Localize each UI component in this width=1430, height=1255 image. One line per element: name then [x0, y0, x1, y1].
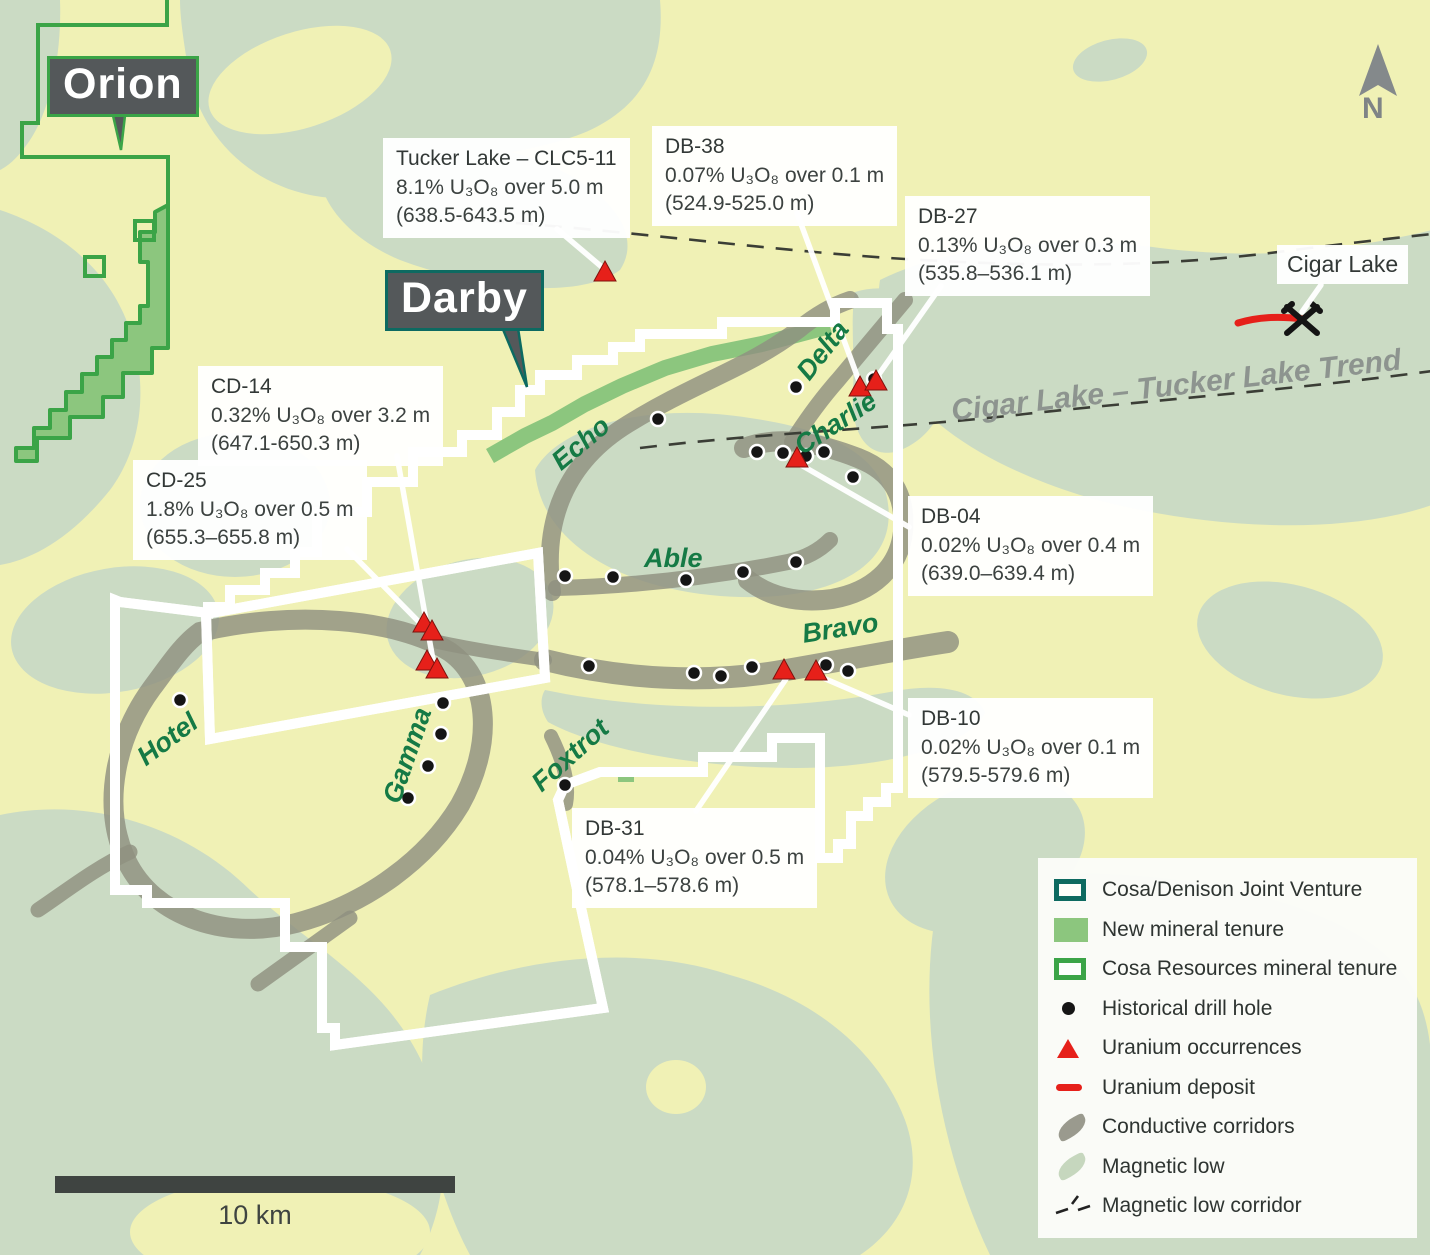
- legend-label: Uranium deposit: [1102, 1076, 1255, 1100]
- annotation-title: Tucker Lake – CLC5-11: [396, 145, 617, 174]
- annotation-interval: (524.9-525.0 m): [665, 190, 884, 219]
- jv-boundary-swatch-icon: [1054, 879, 1102, 901]
- legend-label: Historical drill hole: [1102, 997, 1272, 1021]
- annotation-grade: 8.1% U₃O₈ over 5.0 m: [396, 174, 617, 203]
- annotation-title: DB-38: [665, 133, 884, 162]
- annotation-tucker-lake: Tucker Lake – CLC5-11 8.1% U₃O₈ over 5.0…: [383, 138, 630, 238]
- annotation-db-38: DB-38 0.07% U₃O₈ over 0.1 m (524.9-525.0…: [652, 126, 897, 226]
- annotation-db-31: DB-31 0.04% U₃O₈ over 0.5 m (578.1–578.6…: [572, 808, 817, 908]
- magnetic-low-blob-icon: [1054, 1158, 1102, 1175]
- annotation-title: DB-04: [921, 503, 1140, 532]
- annotation-interval: (655.3–655.8 m): [146, 524, 354, 553]
- annotation-interval: (647.1-650.3 m): [211, 430, 430, 459]
- annotation-interval: (535.8–536.1 m): [918, 260, 1137, 289]
- annotation-grade: 0.13% U₃O₈ over 0.3 m: [918, 232, 1137, 261]
- annotation-db-04: DB-04 0.02% U₃O₈ over 0.4 m (639.0–639.4…: [908, 496, 1153, 596]
- annotation-title: DB-31: [585, 815, 804, 844]
- annotation-db-27: DB-27 0.13% U₃O₈ over 0.3 m (535.8–536.1…: [905, 196, 1150, 296]
- legend-label: Cosa Resources mineral tenure: [1102, 957, 1397, 981]
- north-label: N: [1362, 92, 1384, 126]
- annotation-grade: 1.8% U₃O₈ over 0.5 m: [146, 496, 354, 525]
- legend-row-conductive-corridors: Conductive corridors: [1054, 1109, 1401, 1145]
- legend-label: Magnetic low: [1102, 1155, 1225, 1179]
- project-label-darby: Darby: [385, 270, 544, 331]
- annotation-interval: (578.1–578.6 m): [585, 872, 804, 901]
- legend-label: Uranium occurrences: [1102, 1036, 1302, 1060]
- annotation-title: DB-10: [921, 705, 1140, 734]
- annotation-title: CD-14: [211, 373, 430, 402]
- annotation-interval: (638.5-643.5 m): [396, 202, 617, 231]
- annotation-title: Cigar Lake: [1287, 249, 1398, 280]
- legend-row-magnetic-low-corridor: Magnetic low corridor: [1054, 1188, 1401, 1224]
- annotation-db-10: DB-10 0.02% U₃O₈ over 0.1 m (579.5-579.6…: [908, 698, 1153, 798]
- legend: Cosa/Denison Joint Venture New mineral t…: [1038, 858, 1417, 1238]
- legend-row-drill-hole: Historical drill hole: [1054, 991, 1401, 1027]
- annotation-cd-25: CD-25 1.8% U₃O₈ over 0.5 m (655.3–655.8 …: [133, 460, 367, 560]
- annotation-grade: 0.02% U₃O₈ over 0.1 m: [921, 734, 1140, 763]
- magnetic-low-corridor-dash-icon: [1054, 1194, 1102, 1218]
- drill-hole-dot-icon: [1054, 1002, 1102, 1015]
- legend-row-magnetic-low: Magnetic low: [1054, 1149, 1401, 1185]
- annotation-grade: 0.07% U₃O₈ over 0.1 m: [665, 162, 884, 191]
- scale-bar: [55, 1176, 455, 1193]
- legend-row-joint-venture: Cosa/Denison Joint Venture: [1054, 872, 1401, 908]
- exploration-map: Orion Darby Tucker Lake – CLC5-11 8.1% U…: [0, 0, 1430, 1255]
- annotation-interval: (579.5-579.6 m): [921, 762, 1140, 791]
- legend-row-uranium-deposit: Uranium deposit: [1054, 1070, 1401, 1106]
- cosa-tenure-swatch-icon: [1054, 958, 1102, 980]
- legend-row-new-tenure: New mineral tenure: [1054, 912, 1401, 948]
- annotation-title: CD-25: [146, 467, 354, 496]
- legend-label: New mineral tenure: [1102, 918, 1284, 942]
- annotation-cigar-lake: Cigar Lake: [1277, 245, 1408, 284]
- scale-bar-label: 10 km: [170, 1200, 340, 1231]
- legend-label: Conductive corridors: [1102, 1115, 1295, 1139]
- annotation-grade: 0.04% U₃O₈ over 0.5 m: [585, 844, 804, 873]
- legend-label: Magnetic low corridor: [1102, 1194, 1302, 1218]
- uranium-triangle-icon: [1054, 1039, 1102, 1058]
- annotation-grade: 0.02% U₃O₈ over 0.4 m: [921, 532, 1140, 561]
- annotation-title: DB-27: [918, 203, 1137, 232]
- project-label-orion: Orion: [47, 56, 199, 117]
- legend-row-cosa-tenure: Cosa Resources mineral tenure: [1054, 951, 1401, 987]
- new-tenure-swatch-icon: [1054, 918, 1102, 942]
- annotation-grade: 0.32% U₃O₈ over 3.2 m: [211, 402, 430, 431]
- annotation-interval: (639.0–639.4 m): [921, 560, 1140, 589]
- uranium-deposit-line-icon: [1054, 1084, 1102, 1091]
- legend-row-uranium-occurrence: Uranium occurrences: [1054, 1030, 1401, 1066]
- annotation-cd-14: CD-14 0.32% U₃O₈ over 3.2 m (647.1-650.3…: [198, 366, 443, 466]
- zone-label-able: Able: [644, 543, 703, 574]
- conductive-corridor-blob-icon: [1054, 1119, 1102, 1136]
- legend-label: Cosa/Denison Joint Venture: [1102, 878, 1362, 902]
